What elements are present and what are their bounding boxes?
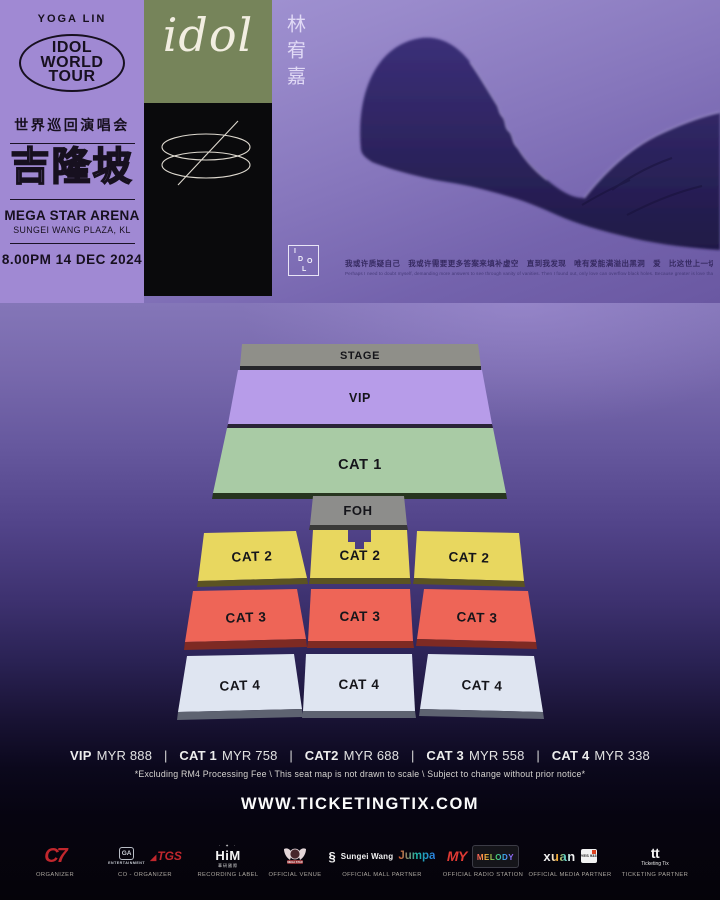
price-separator: | <box>536 748 540 763</box>
top-section: YOGA LIN IDOL WORLD TOUR 世界巡回演唱会 吉隆坡 MEG… <box>0 0 720 303</box>
cat4-left-label: CAT 4 <box>219 677 261 693</box>
price-item: CAT 3MYR 558 <box>426 748 524 763</box>
foh-block-depth <box>309 525 408 530</box>
cat2-center-label: CAT 2 <box>339 548 380 563</box>
price-separator: | <box>411 748 415 763</box>
rings-logo <box>144 103 272 296</box>
sponsor-co-organizer: GA ENTERTAINMENT TGS CO - ORGANIZER <box>95 843 195 878</box>
price-item: CAT 4MYR 338 <box>552 748 650 763</box>
cat2-center-depth <box>309 578 411 584</box>
tour-badge-oval: IDOL WORLD TOUR <box>19 34 125 92</box>
venue-name: MEGA STAR ARENA <box>4 208 139 223</box>
website-url: WWW.TICKETINGTIX.COM <box>0 795 720 814</box>
divider <box>10 243 135 244</box>
pricing-bar: VIPMYR 888 | CAT 1MYR 758 | CAT2MYR 688 … <box>0 748 720 763</box>
divider <box>10 143 135 144</box>
seatmap: STAGE VIP CAT 1 FOH CAT 2 CAT 2 CAT 2 <box>0 303 720 733</box>
tgs-logo: TGS <box>150 849 182 863</box>
price-value: MYR 338 <box>594 748 650 763</box>
ticketing-tix-text: Ticketing Tix <box>641 861 669 867</box>
seatmap-section: STAGE VIP CAT 1 FOH CAT 2 CAT 2 CAT 2 <box>0 303 720 900</box>
yes933-logo: YES 933 <box>581 849 597 863</box>
stage-label: STAGE <box>340 350 380 362</box>
cat4-center-depth <box>302 711 416 718</box>
stage-block-depth <box>240 366 481 370</box>
sponsor-official-venue: MEGA STAR OFFICIAL VENUE <box>251 843 339 878</box>
vip-block-depth <box>227 424 493 428</box>
cat4-right-label: CAT 4 <box>461 677 503 693</box>
sungei-wang-text: Sungei Wang <box>341 852 394 861</box>
artist-name: YOGA LIN <box>38 13 107 25</box>
pricing-disclaimer: *Excluding RM4 Processing Fee \ This sea… <box>0 769 720 779</box>
him-cn-text: 華研國際 <box>218 863 238 869</box>
idol-box-letter: L <box>302 266 306 273</box>
figure-silhouette <box>360 38 720 250</box>
concert-poster: YOGA LIN IDOL WORLD TOUR 世界巡回演唱会 吉隆坡 MEG… <box>0 0 720 900</box>
vip-label: VIP <box>349 391 371 405</box>
cat3-center-depth <box>307 641 414 648</box>
price-separator: | <box>164 748 168 763</box>
sponsor-label: CO - ORGANIZER <box>95 872 195 878</box>
price-value: MYR 758 <box>222 748 278 763</box>
ga-entertainment-text: ENTERTAINMENT <box>108 861 145 865</box>
cat1-label: CAT 1 <box>338 457 382 473</box>
city-name-cn: 吉隆坡 <box>10 145 133 191</box>
sponsor-ticketing-partner: tt Ticketing Tix TICKETING PARTNER <box>603 843 707 878</box>
price-label: VIP <box>70 748 92 763</box>
idol-box-logo: I D O L <box>288 245 319 276</box>
idol-box-letter: I <box>294 248 296 255</box>
him-logo: · ✦ · HiM 華研國際 <box>215 843 240 869</box>
logo-panel <box>144 103 272 296</box>
price-item: VIPMYR 888 <box>70 748 152 763</box>
price-label: CAT2 <box>305 748 339 763</box>
sponsor-label: OFFICIAL MALL PARTNER <box>328 872 436 878</box>
sponsor-label: ORGANIZER <box>13 872 97 878</box>
album-wordmark: idol <box>163 8 254 103</box>
sponsor-mall-partner: § Sungei Wang Jumpa OFFICIAL MALL PARTNE… <box>328 843 436 878</box>
sungei-wang-glyph: § <box>329 849 336 864</box>
melody-logo: MELODY <box>472 845 519 868</box>
him-wordmark: HiM <box>215 848 240 863</box>
sponsor-label: OFFICIAL VENUE <box>251 872 339 878</box>
sponsor-label: TICKETING PARTNER <box>603 872 707 878</box>
tour-badge-line: TOUR <box>48 70 95 85</box>
xuan-logo: xuan <box>543 849 575 864</box>
sponsors-bar: C7 ORGANIZER GA ENTERTAINMENT TGS CO - O… <box>0 843 720 893</box>
ga-entertainment-logo: GA ENTERTAINMENT <box>108 847 145 865</box>
sponsor-organizer: C7 ORGANIZER <box>13 843 97 878</box>
cat3-right-label: CAT 3 <box>456 609 498 625</box>
tt-glyph: tt <box>651 846 659 860</box>
melody-text: MELODY <box>477 853 514 862</box>
lyric-line-en: Perhaps I need to doubt myself, demandin… <box>345 271 713 276</box>
price-value: MYR 888 <box>97 748 153 763</box>
ticketing-tix-logo: tt Ticketing Tix <box>641 846 669 867</box>
price-value: MYR 558 <box>469 748 525 763</box>
price-item: CAT 1MYR 758 <box>179 748 277 763</box>
tour-subtitle-cn: 世界巡回演唱会 <box>14 115 130 135</box>
cat3-center-label: CAT 3 <box>339 609 380 624</box>
artist-name-cn-vertical: 林宥嘉 <box>282 14 308 92</box>
cat4-center-label: CAT 4 <box>338 677 379 692</box>
price-separator: | <box>289 748 293 763</box>
yes933-text: YES 933 <box>581 854 597 858</box>
price-label: CAT 4 <box>552 748 590 763</box>
foh-label: FOH <box>343 503 372 518</box>
venue-address: SUNGEI WANG PLAZA, KL <box>13 225 131 235</box>
idol-box-letter: D <box>298 256 303 263</box>
ga-monogram: GA <box>119 847 134 860</box>
c7-logo: C7 <box>44 845 66 868</box>
mega-star-text: MEGA STAR <box>287 860 302 864</box>
price-item: CAT2MYR 688 <box>305 748 399 763</box>
mega-star-emblem: MEGA STAR <box>282 846 308 866</box>
price-label: CAT 3 <box>426 748 464 763</box>
cat3-left-label: CAT 3 <box>225 609 267 625</box>
price-label: CAT 1 <box>179 748 217 763</box>
left-info-panel: YOGA LIN IDOL WORLD TOUR 世界巡回演唱会 吉隆坡 MEG… <box>0 0 144 303</box>
lyric-line-cn: 我或许质疑自己 我或许需要更多答案来填补虚空 直到我发现 唯有爱能满溢出黑洞 爱… <box>345 258 713 269</box>
divider <box>10 199 135 200</box>
price-value: MYR 688 <box>344 748 400 763</box>
cat2-right-label: CAT 2 <box>448 549 490 565</box>
album-wordmark-panel: idol <box>144 0 272 103</box>
my-logo: MY <box>447 848 467 864</box>
idol-box-letter: O <box>307 258 312 265</box>
cat2-left-label: CAT 2 <box>231 548 273 564</box>
show-datetime: 8.00PM 14 DEC 2024 <box>2 252 142 267</box>
